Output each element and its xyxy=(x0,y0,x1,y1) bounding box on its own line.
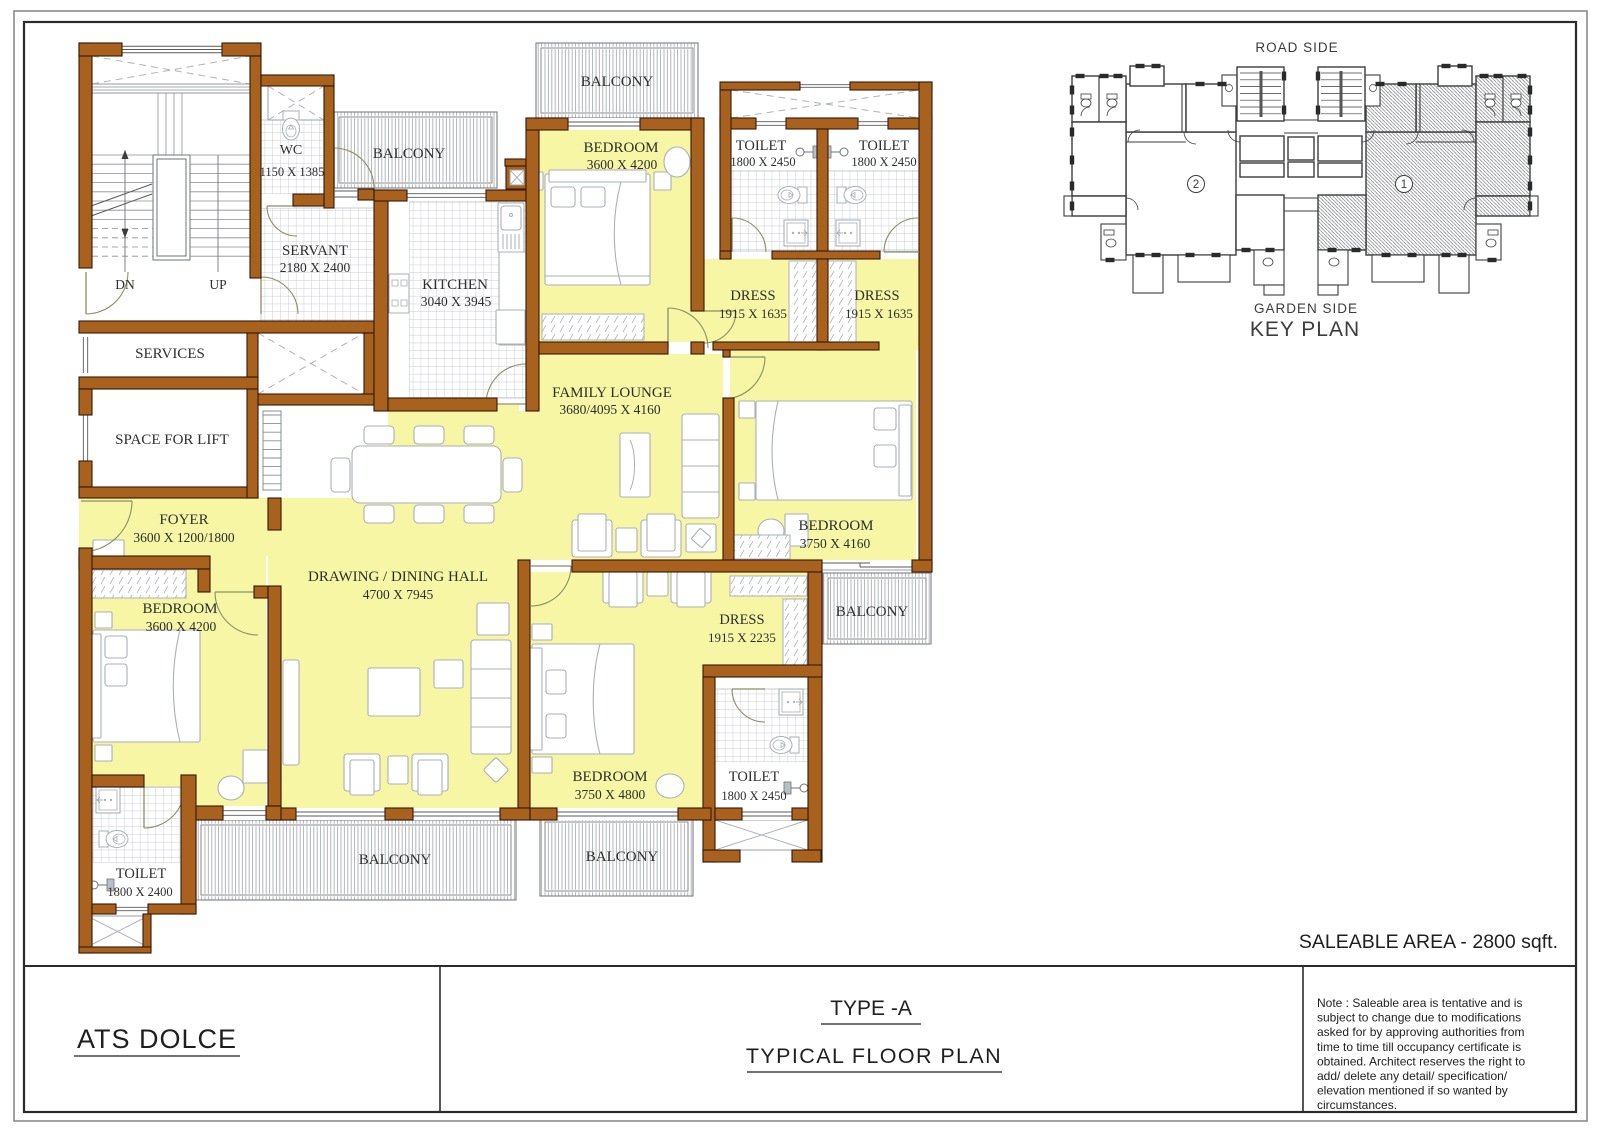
svg-text:1800 X 2450: 1800 X 2450 xyxy=(851,155,916,169)
svg-text:DRAWING / DINING HALL: DRAWING / DINING HALL xyxy=(308,569,488,585)
svg-text:3600 X 4200: 3600 X 4200 xyxy=(146,619,217,634)
svg-text:DRESS: DRESS xyxy=(854,288,899,304)
svg-text:BALCONY: BALCONY xyxy=(359,852,432,868)
svg-text:3680/4095 X 4160: 3680/4095 X 4160 xyxy=(559,402,661,417)
svg-text:DRESS: DRESS xyxy=(730,288,775,304)
svg-text:3600 X 1200/1800: 3600 X 1200/1800 xyxy=(133,530,235,545)
svg-text:1915 X 2235: 1915 X 2235 xyxy=(708,630,776,645)
svg-text:1: 1 xyxy=(1401,179,1407,191)
svg-text:1800 X 2450: 1800 X 2450 xyxy=(721,789,786,803)
svg-text:SALEABLE AREA - 2800 sqft.: SALEABLE AREA - 2800 sqft. xyxy=(1299,931,1558,953)
svg-text:2: 2 xyxy=(1193,179,1199,191)
svg-text:1915 X 1635: 1915 X 1635 xyxy=(845,306,913,321)
svg-text:DN: DN xyxy=(115,277,135,292)
svg-text:1800 X 2450: 1800 X 2450 xyxy=(730,155,795,169)
svg-text:SPACE FOR LIFT: SPACE FOR LIFT xyxy=(115,432,229,448)
svg-text:BALCONY: BALCONY xyxy=(836,604,909,620)
svg-text:BEDROOM: BEDROOM xyxy=(798,518,873,534)
svg-text:2180 X 2400: 2180 X 2400 xyxy=(280,260,351,275)
svg-text:KITCHEN: KITCHEN xyxy=(422,277,488,293)
svg-text:3750 X 4160: 3750 X 4160 xyxy=(800,536,871,551)
svg-text:Note : Saleable area is tentat: Note : Saleable area is tentative and is xyxy=(1317,996,1522,1010)
svg-text:SERVANT: SERVANT xyxy=(282,243,348,259)
svg-text:UP: UP xyxy=(209,277,226,292)
svg-text:3040 X 3945: 3040 X 3945 xyxy=(421,294,492,309)
svg-text:FOYER: FOYER xyxy=(159,512,208,528)
svg-text:TYPICAL FLOOR PLAN: TYPICAL FLOOR PLAN xyxy=(746,1044,1002,1068)
svg-text:asked for by approving authori: asked for by approving authorities from xyxy=(1317,1025,1524,1039)
svg-text:circumstances.: circumstances. xyxy=(1317,1098,1397,1112)
svg-text:1800 X 2400: 1800 X 2400 xyxy=(107,885,172,899)
svg-text:GARDEN SIDE: GARDEN SIDE xyxy=(1254,301,1358,316)
svg-text:subject to change due to modif: subject to change due to modifications xyxy=(1317,1011,1521,1025)
svg-text:elevation mentioned if so want: elevation mentioned if so wanted by xyxy=(1317,1084,1508,1098)
svg-text:4700 X 7945: 4700 X 7945 xyxy=(363,587,434,602)
svg-text:obtained. Architect reserves t: obtained. Architect reserves the right t… xyxy=(1317,1054,1525,1068)
svg-text:time to time till occupancy ce: time to time till occupancy certificate … xyxy=(1317,1040,1521,1054)
svg-text:TOILET: TOILET xyxy=(729,769,780,785)
svg-text:1915 X 1635: 1915 X 1635 xyxy=(719,306,787,321)
svg-text:add/ delete any detail/ specif: add/ delete any detail/ specification/ xyxy=(1317,1069,1508,1083)
svg-text:TOILET: TOILET xyxy=(736,138,787,154)
svg-text:FAMILY LOUNGE: FAMILY LOUNGE xyxy=(552,385,672,401)
svg-text:SERVICES: SERVICES xyxy=(135,346,205,362)
svg-text:BEDROOM: BEDROOM xyxy=(142,601,217,617)
svg-text:TOILET: TOILET xyxy=(859,138,910,154)
svg-text:TOILET: TOILET xyxy=(116,866,167,882)
svg-text:WC: WC xyxy=(280,143,303,158)
svg-text:BEDROOM: BEDROOM xyxy=(583,140,658,156)
svg-text:1150 X 1385: 1150 X 1385 xyxy=(260,165,325,179)
svg-text:ROAD SIDE: ROAD SIDE xyxy=(1255,40,1338,55)
svg-text:3600 X 4200: 3600 X 4200 xyxy=(587,157,658,172)
svg-text:KEY PLAN: KEY PLAN xyxy=(1250,318,1360,341)
svg-text:3750 X 4800: 3750 X 4800 xyxy=(575,787,646,802)
svg-text:BALCONY: BALCONY xyxy=(581,74,654,90)
svg-text:BALCONY: BALCONY xyxy=(586,849,659,865)
svg-text:BALCONY: BALCONY xyxy=(373,146,446,162)
svg-text:TYPE -A: TYPE -A xyxy=(830,997,912,1020)
svg-text:ATS DOLCE: ATS DOLCE xyxy=(77,1024,237,1054)
svg-text:BEDROOM: BEDROOM xyxy=(572,769,647,785)
svg-text:DRESS: DRESS xyxy=(719,612,764,628)
